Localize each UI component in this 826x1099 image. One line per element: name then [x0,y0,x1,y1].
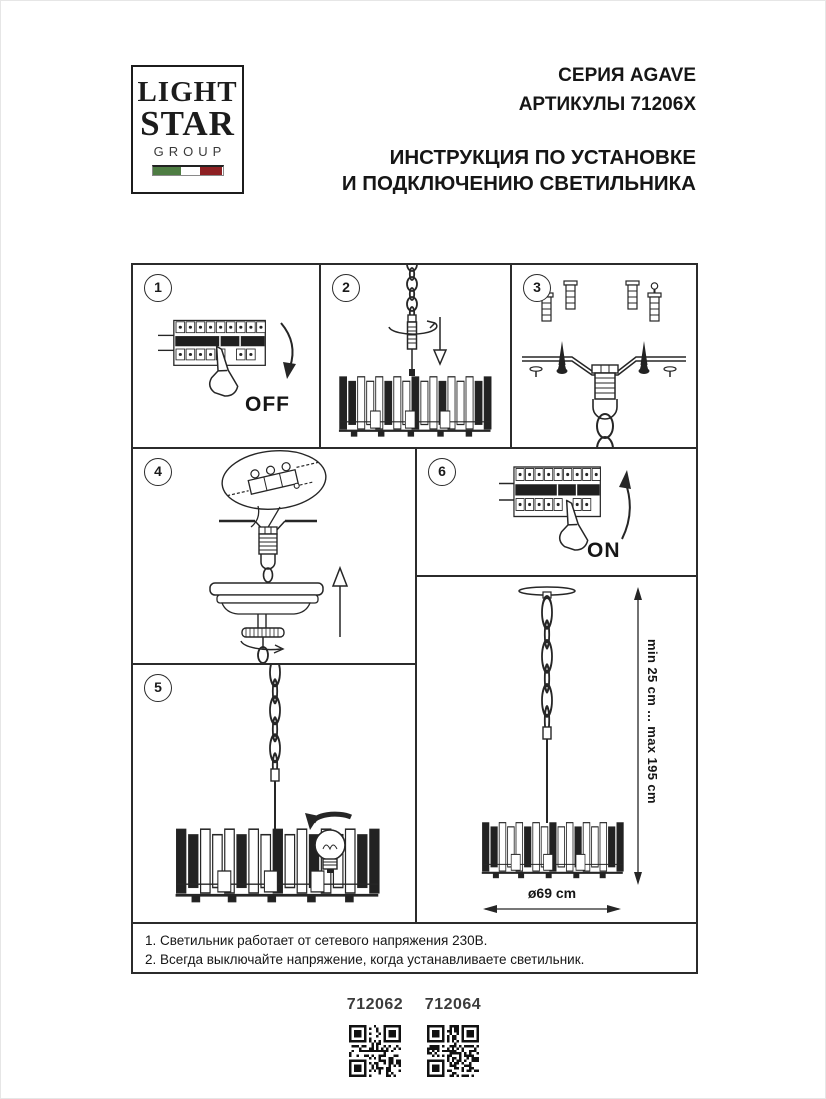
dimensions-panel: min 25 cm ... max 195 cm ø69 cm [417,577,696,922]
qr-code-icon [349,1025,401,1077]
flag-white-segment [181,167,201,175]
article-code-712062: 712062 [342,996,408,1014]
panel-6-number: 6 [428,458,456,486]
wiring-canopy-diagram [133,449,415,663]
note-2: 2. Всегда выключайте напряжение, когда у… [145,950,684,969]
step-4-panel: 4 [133,449,415,663]
step-1-panel: 1 OFF [133,265,319,447]
logo-word-light: LIGHT [133,79,242,107]
logo-word-group: GROUP [133,144,242,159]
off-label: OFF [245,393,290,417]
panel-2-number: 2 [332,274,360,302]
instruction-grid: 1 OFF 2 [131,263,698,974]
flag-red-segment [200,167,222,175]
panel-4-number: 4 [144,458,172,486]
articles-title: АРТИКУЛЫ 71206X [342,90,696,119]
lightstar-logo: LIGHT STAR GROUP [131,65,244,194]
panel-5-number: 5 [144,674,172,702]
italian-flag-icon [152,165,224,176]
flag-green-segment [153,167,181,175]
instruction-title-line2: И ПОДКЛЮЧЕНИЮ СВЕТИЛЬНИКА [342,171,696,197]
logo-word-star: STAR [133,107,242,140]
article-code-712064: 712064 [420,996,486,1014]
header: СЕРИЯ AGAVE АРТИКУЛЫ 71206X ИНСТРУКЦИЯ П… [342,61,696,197]
height-range-label: min 25 cm ... max 195 cm [645,639,660,804]
diameter-label: ø69 cm [480,885,624,901]
instruction-page: LIGHT STAR GROUP СЕРИЯ AGAVE АРТИКУЛЫ 71… [0,0,826,1099]
step-3-panel: 3 [512,265,696,447]
notes-section: 1. Светильник работает от сетевого напря… [133,923,696,972]
hang-and-bulb-diagram [133,665,415,922]
series-title: СЕРИЯ AGAVE [342,61,696,90]
qr-code-icon [427,1025,479,1077]
step-6-panel: 6 ON [417,449,696,575]
instruction-title-line1: ИНСТРУКЦИЯ ПО УСТАНОВКЕ [342,145,696,171]
on-label: ON [587,539,621,563]
breaker-on-diagram [417,449,696,575]
panel-1-number: 1 [144,274,172,302]
step-2-panel: 2 [321,265,510,447]
note-1: 1. Светильник работает от сетевого напря… [145,931,684,950]
step-5-panel: 5 [133,665,415,922]
panel-3-number: 3 [523,274,551,302]
